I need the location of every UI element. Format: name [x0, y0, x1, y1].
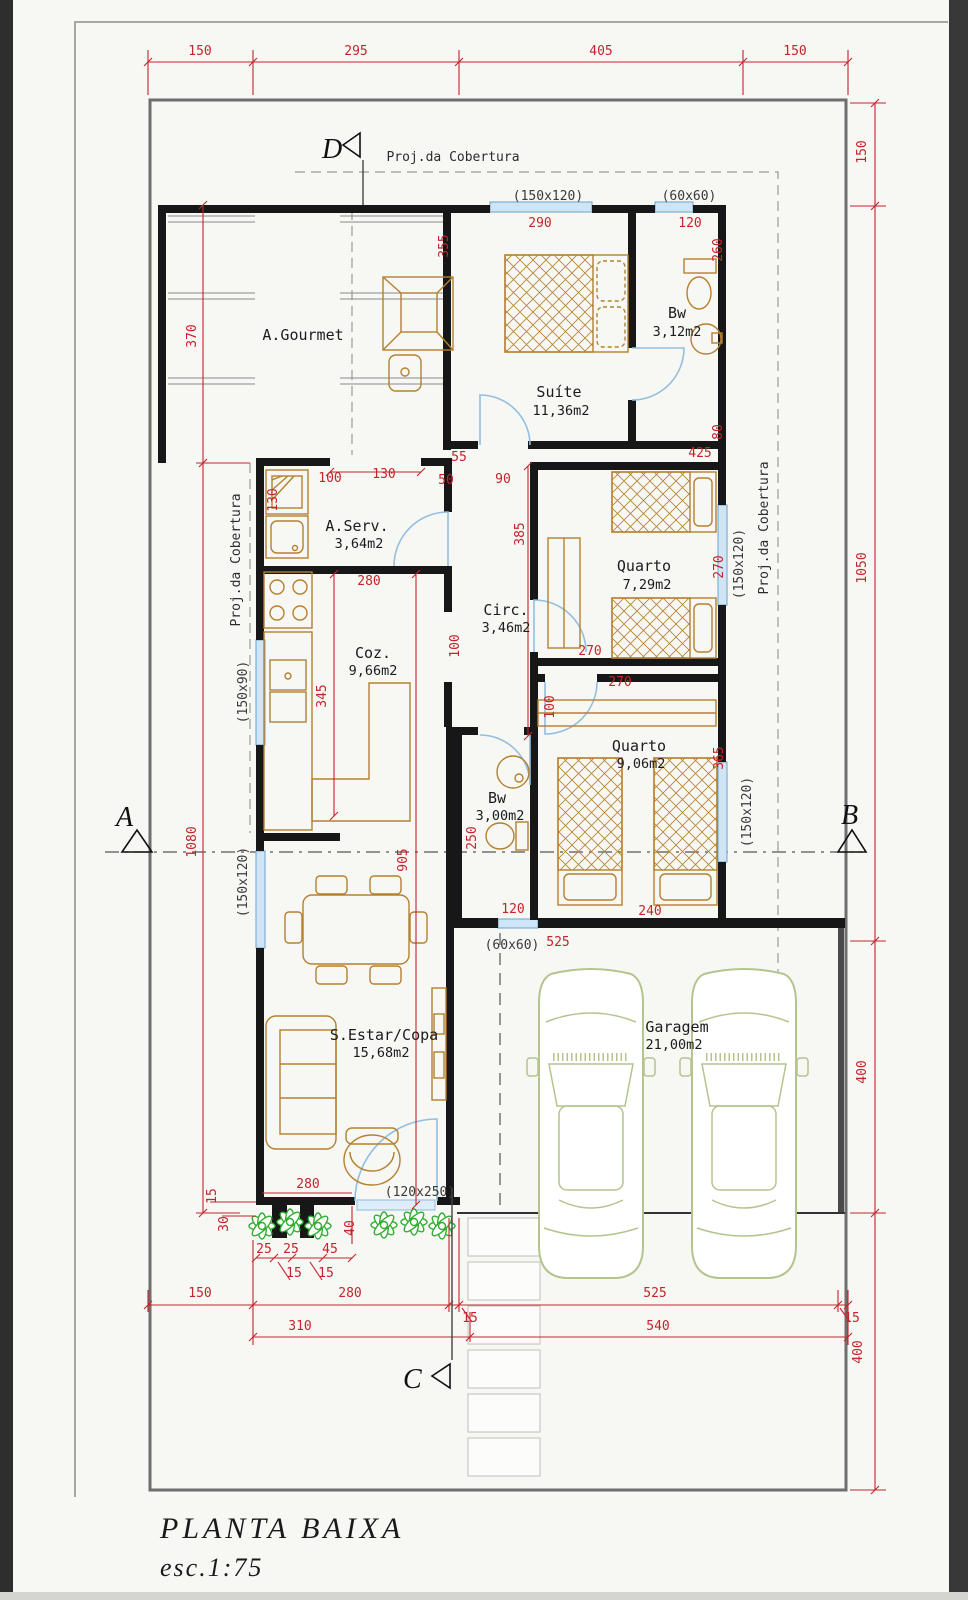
dim-label: 150	[855, 140, 870, 163]
room-area-quarto2: 9,06m2	[617, 756, 666, 772]
front-door-sill	[357, 1200, 435, 1210]
dim-label: 15	[286, 1266, 302, 1281]
dim-label: 150	[188, 1286, 211, 1301]
room-label-quarto2: Quarto	[612, 737, 666, 755]
dim-label: (150x90)	[236, 661, 251, 724]
dim-label: 345	[315, 684, 330, 707]
dim-label: 50	[438, 473, 454, 488]
dim-label: 130	[266, 488, 281, 511]
dim-label: 1050	[855, 552, 870, 583]
dim-label: 270	[578, 644, 601, 659]
dim-label: 270	[608, 675, 631, 690]
section-label-a: A	[114, 802, 134, 833]
dim-label: (60x60)	[662, 189, 717, 204]
dim-label: 525	[546, 935, 569, 950]
dim-label: 385	[513, 522, 528, 545]
dim-label: 150	[188, 44, 211, 59]
dim-label: 1080	[185, 826, 200, 857]
dim-label: (60x60)	[485, 938, 540, 953]
dim-label: 540	[646, 1319, 669, 1334]
dim-label: 15	[844, 1311, 860, 1326]
dim-label: (150x120)	[513, 189, 583, 204]
drawing-title: PLANTA BAIXA	[159, 1512, 404, 1545]
dim-label: (120x250)	[385, 1185, 455, 1200]
proj-cobertura-top: Proj.da Cobertura	[386, 150, 519, 165]
dim-label: 130	[372, 467, 395, 482]
room-label-aserv: A.Serv.	[325, 517, 388, 535]
dim-label: 100	[543, 695, 558, 718]
dim-label: 25	[256, 1242, 272, 1257]
floor-plan-canvas: D C A B Proj.da Cobertura Proj.da Cobert…	[0, 0, 968, 1600]
room-area-bw2: 3,00m2	[476, 808, 525, 824]
room-label-bw1: Bw	[668, 304, 687, 322]
car-2	[680, 969, 808, 1278]
dim-label: 240	[638, 904, 661, 919]
floor-plan-page: D C A B Proj.da Cobertura Proj.da Cobert…	[0, 0, 968, 1600]
dim-label: 355	[437, 234, 452, 257]
dim-label: 25	[283, 1242, 299, 1257]
dim-label: 45	[322, 1242, 338, 1257]
right-dark-band	[949, 0, 968, 1600]
dim-label: 90	[495, 472, 511, 487]
dim-label: 280	[296, 1177, 319, 1192]
section-label-d: D	[321, 134, 342, 165]
window-quarto2	[718, 762, 727, 862]
dim-label: 100	[448, 634, 463, 657]
dim-label: 400	[851, 1340, 866, 1363]
dim-label: 405	[589, 44, 612, 59]
room-label-circ: Circ.	[483, 601, 528, 619]
window-bw2	[498, 919, 538, 928]
room-label-quarto1: Quarto	[617, 557, 671, 575]
car-1	[527, 969, 655, 1278]
room-area-bw1: 3,12m2	[653, 324, 702, 340]
dim-label: 310	[288, 1319, 311, 1334]
dim-label: 290	[528, 216, 551, 231]
drawing-scale: esc.1:75	[160, 1553, 263, 1582]
dim-label: 400	[855, 1060, 870, 1083]
section-label-b: B	[841, 800, 858, 831]
room-label-gourmet: A.Gourmet	[262, 326, 343, 344]
dim-label: 120	[501, 902, 524, 917]
dim-label: 15	[462, 1311, 478, 1326]
dim-label: 365	[712, 746, 727, 769]
dim-label: 80	[711, 424, 726, 440]
room-area-aserv: 3,64m2	[335, 536, 384, 552]
dim-label: 120	[678, 216, 701, 231]
dim-label: 905	[396, 848, 411, 871]
room-area-coz: 9,66m2	[349, 663, 398, 679]
dim-label: (150x120)	[740, 777, 755, 847]
room-area-garagem: 21,00m2	[646, 1037, 703, 1053]
left-dark-band	[0, 0, 13, 1600]
dim-label: 250	[465, 826, 480, 849]
dim-label: 295	[344, 44, 367, 59]
dim-label: 15	[318, 1266, 334, 1281]
room-area-quarto1: 7,29m2	[623, 577, 672, 593]
dim-label: 150	[783, 44, 806, 59]
room-area-suite: 11,36m2	[533, 403, 590, 419]
dim-label: (150x120)	[732, 529, 747, 599]
dim-label: 280	[357, 574, 380, 589]
dim-label: 525	[643, 1286, 666, 1301]
proj-cobertura-left: Proj.da Cobertura	[229, 493, 244, 626]
room-label-suite: Suíte	[536, 383, 581, 401]
room-label-bw2: Bw	[488, 789, 507, 807]
bottom-strip	[0, 1592, 968, 1600]
dim-label: 425	[688, 446, 711, 461]
dim-label: 270	[712, 555, 727, 578]
room-area-circ: 3,46m2	[482, 620, 531, 636]
dim-label: 15	[205, 1188, 220, 1204]
dim-label: 260	[711, 238, 726, 261]
room-label-coz: Coz.	[355, 644, 391, 662]
room-area-estar: 15,68m2	[353, 1045, 410, 1061]
dim-label: 100	[318, 471, 341, 486]
section-label-c: C	[403, 1364, 422, 1395]
dim-label: 370	[185, 324, 200, 347]
dim-label: 30	[217, 1216, 232, 1232]
window-estar	[256, 851, 265, 948]
window-quarto1	[718, 505, 727, 605]
room-label-garagem: Garagem	[645, 1018, 708, 1036]
room-label-estar: S.Estar/Copa	[330, 1026, 438, 1044]
proj-cobertura-right: Proj.da Cobertura	[757, 461, 772, 594]
dim-label: 40	[343, 1220, 358, 1236]
dim-label: 55	[451, 450, 467, 465]
dim-label: 280	[338, 1286, 361, 1301]
dim-label: (150x120)	[236, 847, 251, 917]
